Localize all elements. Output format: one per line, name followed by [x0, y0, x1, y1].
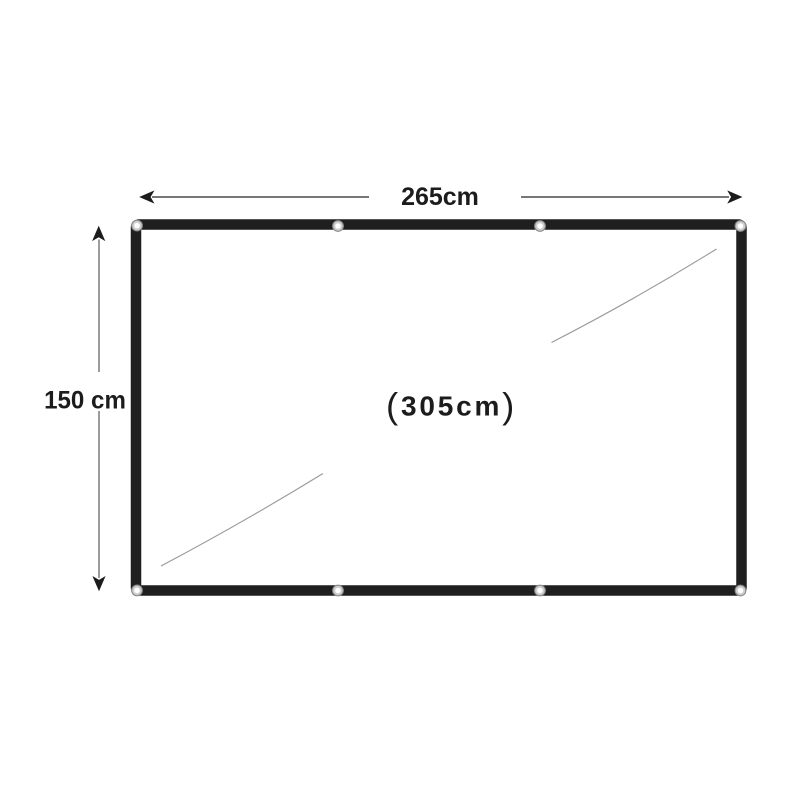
svg-text:265cm: 265cm	[401, 183, 479, 211]
svg-text:150 cm: 150 cm	[44, 387, 126, 414]
svg-text:(305cm): (305cm)	[386, 385, 517, 426]
